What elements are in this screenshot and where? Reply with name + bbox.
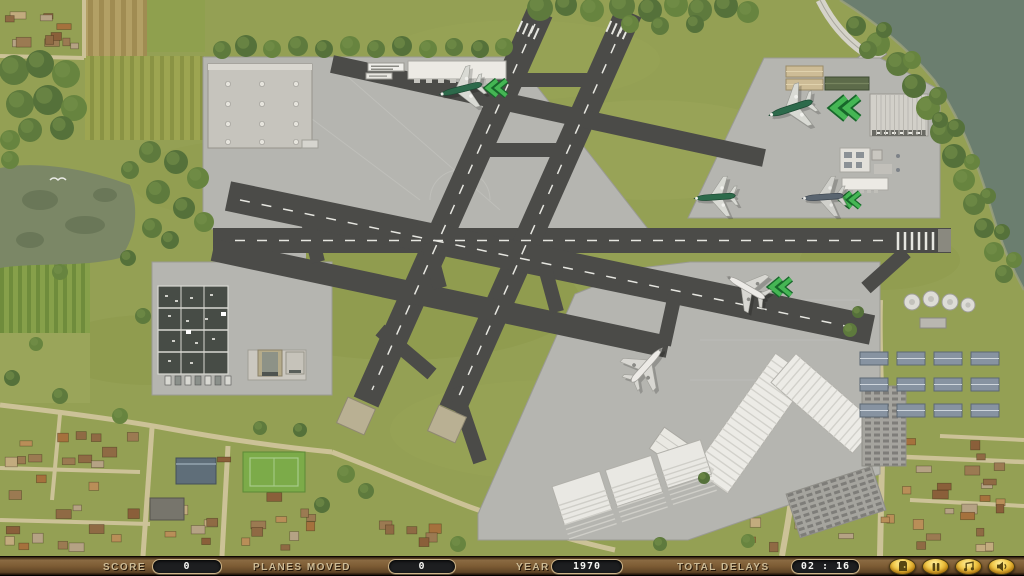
house bbox=[112, 535, 122, 542]
house bbox=[6, 526, 19, 534]
game-screen: SCORE 0 PLANES MOVED 0 YEAR 1970 TOTAL D… bbox=[0, 0, 1024, 576]
house bbox=[16, 37, 31, 47]
house bbox=[276, 517, 287, 523]
house bbox=[191, 526, 205, 534]
house bbox=[63, 38, 70, 46]
house bbox=[281, 545, 290, 551]
house bbox=[242, 538, 250, 546]
year-value: 1970 bbox=[551, 559, 623, 574]
house bbox=[18, 456, 26, 464]
house bbox=[89, 525, 104, 534]
house bbox=[5, 16, 14, 22]
house bbox=[20, 441, 32, 446]
house bbox=[407, 527, 417, 534]
house bbox=[91, 434, 101, 442]
house bbox=[5, 457, 17, 467]
planes-moved-value: 0 bbox=[388, 559, 456, 574]
house bbox=[252, 527, 263, 536]
house bbox=[62, 458, 75, 465]
year-label: YEAR bbox=[516, 557, 550, 576]
house bbox=[937, 483, 951, 490]
swamp bbox=[0, 165, 135, 268]
score-value: 0 bbox=[152, 559, 222, 574]
house bbox=[217, 457, 230, 462]
house bbox=[994, 463, 1005, 471]
house bbox=[301, 509, 309, 517]
house bbox=[58, 433, 69, 442]
music-note-icon bbox=[963, 561, 975, 572]
house bbox=[913, 519, 923, 529]
house bbox=[73, 505, 81, 511]
house bbox=[839, 533, 854, 538]
house bbox=[69, 543, 84, 552]
house bbox=[29, 455, 42, 463]
house bbox=[980, 495, 990, 501]
house bbox=[977, 454, 986, 460]
house bbox=[89, 482, 99, 490]
house bbox=[965, 466, 980, 475]
house bbox=[971, 441, 980, 450]
house bbox=[40, 15, 52, 21]
house bbox=[76, 432, 86, 440]
pause-button[interactable] bbox=[922, 558, 949, 575]
music-button[interactable] bbox=[955, 558, 982, 575]
house bbox=[933, 490, 949, 499]
house bbox=[91, 461, 103, 468]
house bbox=[881, 517, 889, 523]
house bbox=[917, 542, 926, 550]
warehouse-northwest bbox=[208, 64, 312, 148]
house bbox=[202, 538, 211, 545]
house bbox=[903, 486, 911, 494]
planes-moved-label: PLANES MOVED bbox=[253, 557, 351, 576]
house bbox=[306, 522, 314, 531]
house bbox=[429, 524, 441, 534]
house bbox=[983, 479, 996, 485]
house bbox=[127, 432, 138, 441]
total-delays-label: TOTAL DELAYS bbox=[677, 557, 770, 576]
house bbox=[58, 541, 68, 549]
house bbox=[986, 542, 994, 551]
house bbox=[419, 538, 429, 547]
house bbox=[128, 509, 139, 519]
house bbox=[79, 455, 92, 463]
pause-icon bbox=[931, 562, 941, 572]
house bbox=[977, 528, 984, 536]
house bbox=[9, 491, 22, 500]
house bbox=[926, 534, 940, 540]
house bbox=[945, 509, 954, 514]
house bbox=[750, 518, 761, 527]
house bbox=[5, 536, 14, 545]
house bbox=[19, 543, 29, 550]
total-delays-value: 02 : 16 bbox=[791, 559, 860, 574]
house bbox=[916, 466, 931, 473]
house bbox=[996, 505, 1004, 514]
house bbox=[165, 531, 176, 537]
house bbox=[57, 24, 71, 30]
house bbox=[56, 510, 71, 519]
house bbox=[46, 36, 54, 45]
status-bar: SCORE 0 PLANES MOVED 0 YEAR 1970 TOTAL D… bbox=[0, 556, 1024, 576]
house bbox=[32, 533, 43, 543]
house bbox=[385, 525, 394, 534]
service-trucks bbox=[165, 376, 231, 385]
house bbox=[961, 512, 975, 519]
house bbox=[102, 447, 116, 457]
door-icon bbox=[897, 561, 909, 572]
tower bbox=[872, 150, 882, 160]
house bbox=[769, 542, 778, 552]
score-label: SCORE bbox=[103, 557, 146, 576]
quit-button[interactable] bbox=[889, 558, 916, 575]
speaker-icon bbox=[996, 561, 1008, 572]
house bbox=[207, 518, 218, 526]
airport-map bbox=[0, 0, 1024, 556]
house bbox=[290, 532, 299, 541]
sound-button[interactable] bbox=[988, 558, 1015, 575]
house bbox=[71, 43, 79, 49]
house bbox=[36, 475, 46, 483]
house bbox=[267, 493, 282, 502]
